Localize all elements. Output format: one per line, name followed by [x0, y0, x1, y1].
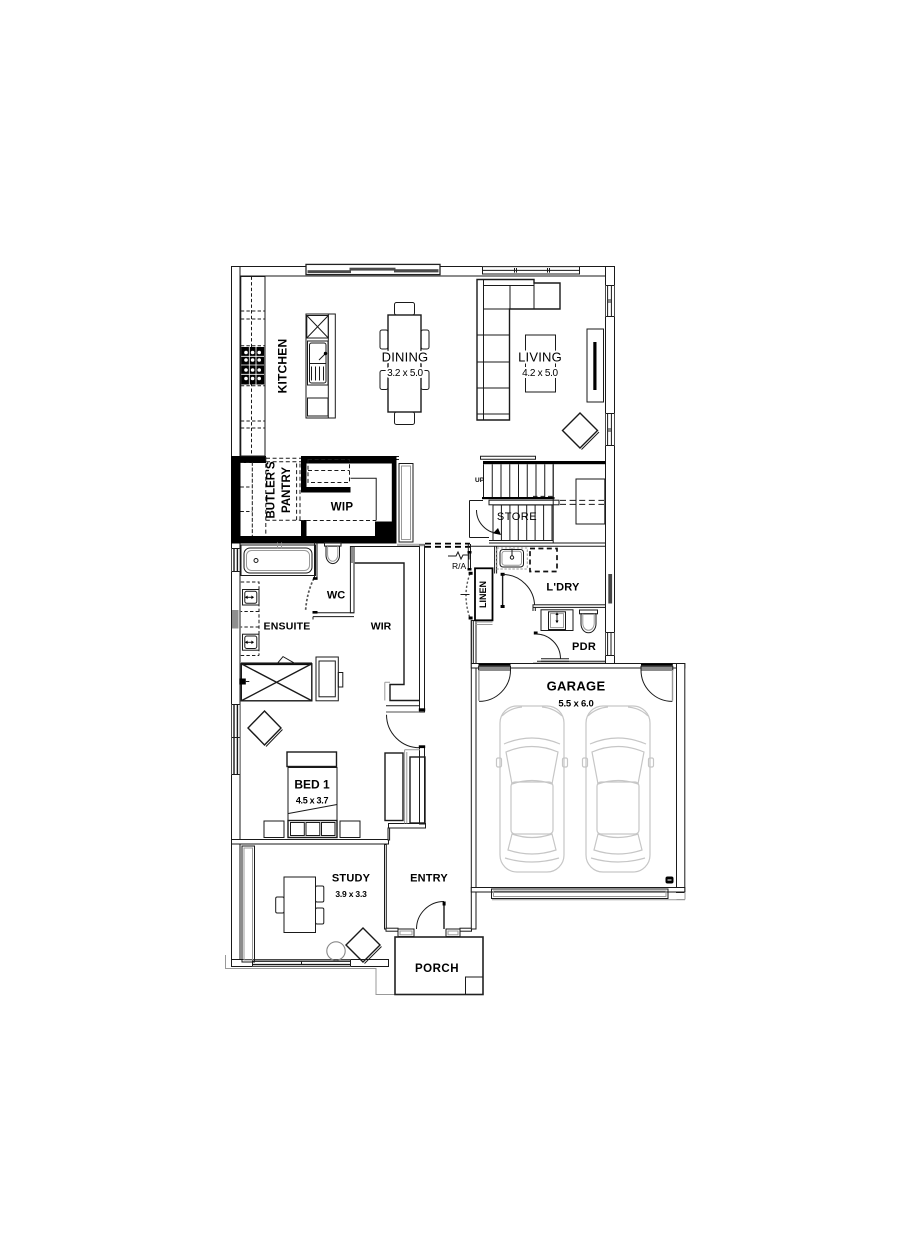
- svg-text:WIR: WIR: [371, 621, 392, 633]
- svg-text:LIVING: LIVING: [518, 350, 562, 365]
- svg-text:PDR: PDR: [572, 641, 596, 653]
- svg-text:4.5 x 3.7: 4.5 x 3.7: [296, 796, 329, 806]
- svg-text:BED 1: BED 1: [294, 778, 330, 792]
- svg-text:BUTLER'S: BUTLER'S: [266, 461, 278, 518]
- svg-text:3.2 x 5.0: 3.2 x 5.0: [387, 368, 423, 379]
- svg-text:UP: UP: [475, 477, 485, 484]
- svg-text:R/A: R/A: [452, 561, 467, 571]
- svg-text:WIP: WIP: [331, 502, 354, 514]
- svg-text:WC: WC: [327, 590, 345, 602]
- svg-text:DINING: DINING: [382, 350, 429, 365]
- svg-text:5.5 x 6.0: 5.5 x 6.0: [558, 699, 593, 710]
- svg-text:PORCH: PORCH: [415, 963, 459, 975]
- svg-text:4.2 x 5.0: 4.2 x 5.0: [522, 368, 558, 379]
- svg-text:STUDY: STUDY: [332, 873, 371, 885]
- svg-text:LINEN: LINEN: [478, 581, 488, 608]
- svg-text:ENTRY: ENTRY: [410, 873, 448, 885]
- svg-text:KITCHEN: KITCHEN: [276, 339, 290, 394]
- svg-text:GARAGE: GARAGE: [547, 679, 606, 694]
- svg-text:ENSUITE: ENSUITE: [264, 621, 311, 633]
- svg-text:STORE: STORE: [497, 511, 537, 523]
- svg-text:3.9 x 3.3: 3.9 x 3.3: [335, 889, 367, 899]
- svg-text:L'DRY: L'DRY: [546, 582, 580, 594]
- svg-text:PANTRY: PANTRY: [281, 467, 293, 513]
